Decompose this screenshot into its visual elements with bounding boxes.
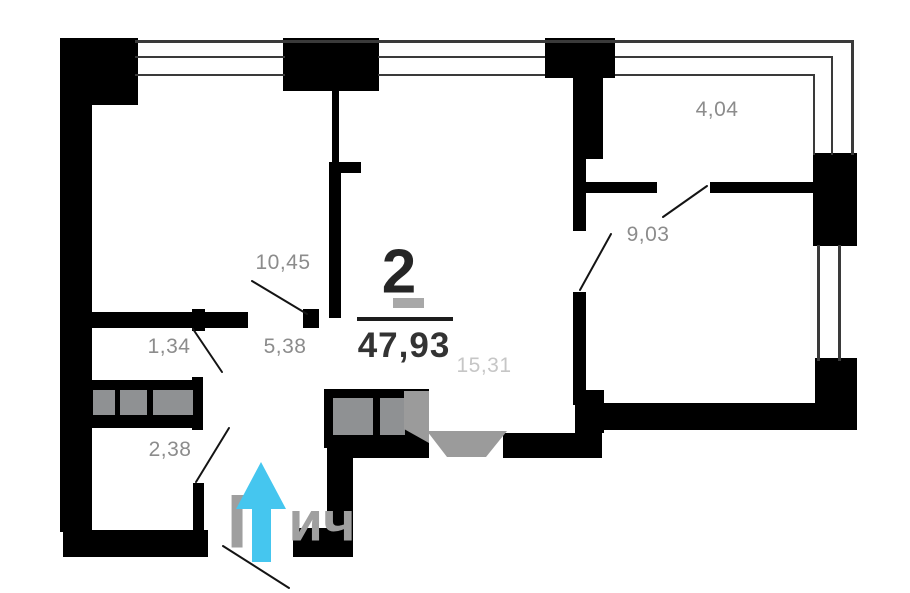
door-swing-room1 xyxy=(252,281,307,314)
door-swing-storage xyxy=(196,428,229,482)
plan-overlay xyxy=(0,0,910,593)
door-swing-bedroom-right xyxy=(580,234,611,290)
floor-plan: 10,45 1,34 5,38 2,38 15,31 9,03 4,04 2 4… xyxy=(0,0,910,593)
door-swing-balcony xyxy=(663,186,707,217)
watermark-wedge xyxy=(404,391,429,443)
entrance-door-mark xyxy=(427,431,507,457)
door-swing-closet-small xyxy=(193,329,222,372)
entrance-arrow-icon xyxy=(236,462,286,562)
